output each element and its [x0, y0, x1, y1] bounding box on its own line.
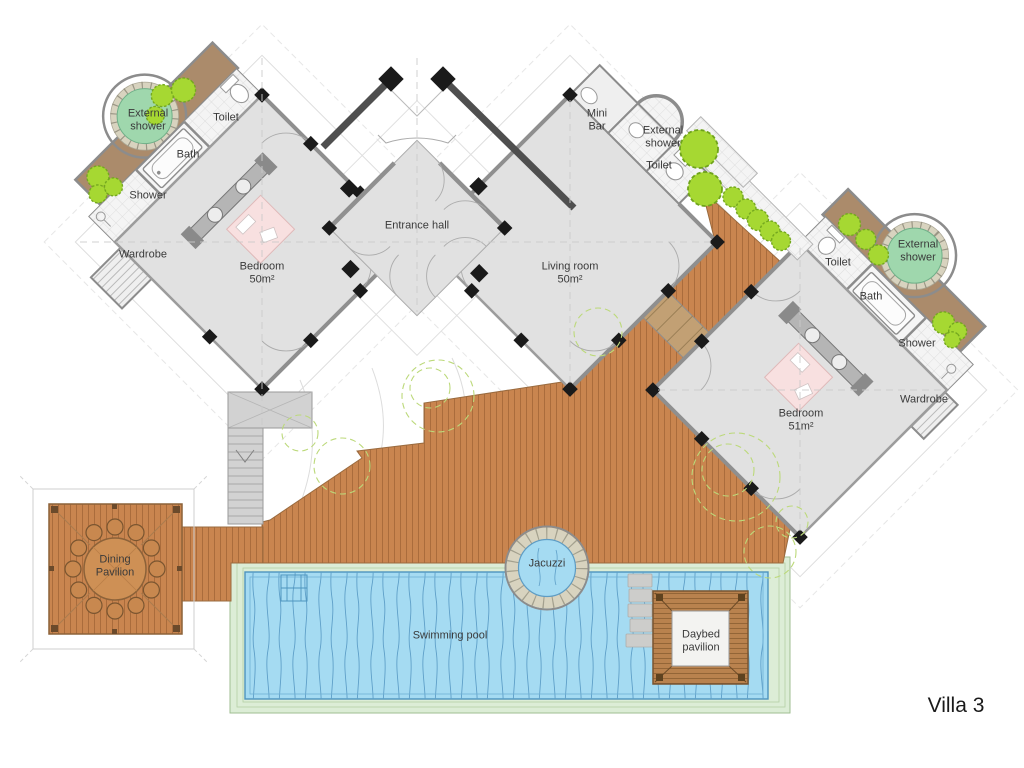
villa-title: Villa 3: [928, 694, 985, 718]
villa-floor-plan: External shower Toilet Bath Shower Wardr…: [0, 0, 1024, 768]
stepping-stones: [626, 574, 653, 647]
dining-pavilion: [20, 476, 207, 662]
daybed-pavilion: [653, 591, 748, 684]
floor-plan-drawing: [0, 0, 1024, 768]
jacuzzi: [506, 527, 589, 610]
